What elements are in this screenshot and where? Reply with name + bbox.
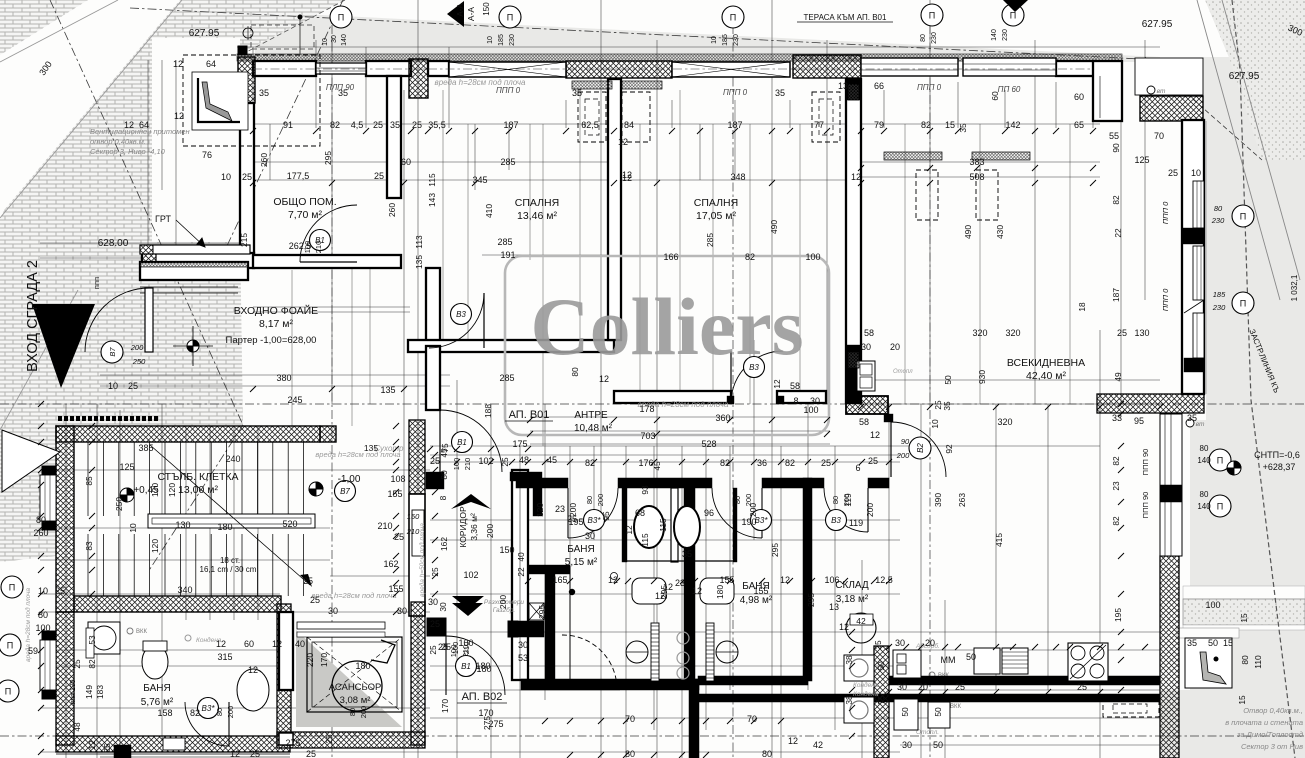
svg-text:П: П <box>338 13 344 23</box>
svg-text:85: 85 <box>84 476 94 486</box>
svg-text:П: П <box>1217 502 1223 512</box>
svg-text:70: 70 <box>625 714 635 724</box>
svg-text:В2: В2 <box>916 443 925 453</box>
svg-text:410: 410 <box>484 204 494 218</box>
svg-text:25: 25 <box>1077 682 1087 692</box>
svg-text:360: 360 <box>715 413 730 423</box>
svg-text:20: 20 <box>925 638 935 648</box>
svg-text:220: 220 <box>305 653 315 667</box>
svg-text:140: 140 <box>1197 502 1211 511</box>
svg-text:703: 703 <box>640 431 655 441</box>
svg-text:383: 383 <box>969 157 984 167</box>
svg-text:166: 166 <box>663 252 678 262</box>
svg-text:142: 142 <box>1005 120 1020 130</box>
svg-text:13,46 м²: 13,46 м² <box>517 210 557 222</box>
svg-text:12: 12 <box>692 586 702 596</box>
svg-text:30: 30 <box>438 602 448 612</box>
svg-text:Кондена: Кондена <box>853 681 879 689</box>
svg-text:508: 508 <box>969 172 984 182</box>
svg-text:185: 185 <box>722 34 729 46</box>
svg-text:12: 12 <box>870 430 880 440</box>
svg-text:68: 68 <box>635 508 645 518</box>
svg-text:90: 90 <box>1111 143 1121 153</box>
svg-text:вт: вт <box>1157 88 1166 95</box>
svg-text:285: 285 <box>705 233 715 247</box>
svg-text:10: 10 <box>38 586 48 596</box>
svg-text:158: 158 <box>157 708 172 718</box>
svg-text:Отвор 0,40кв.м.,: Отвор 0,40кв.м., <box>1243 706 1303 715</box>
svg-text:75: 75 <box>876 695 886 705</box>
svg-text:25: 25 <box>373 120 383 130</box>
svg-text:П: П <box>1010 11 1016 21</box>
svg-text:ППП 90: ППП 90 <box>1141 492 1150 519</box>
svg-text:92: 92 <box>944 444 954 454</box>
svg-text:25: 25 <box>250 749 260 758</box>
svg-text:30: 30 <box>585 531 595 541</box>
svg-text:12: 12 <box>174 111 184 121</box>
svg-text:200: 200 <box>596 494 605 507</box>
svg-text:33: 33 <box>1112 413 1122 423</box>
svg-text:348: 348 <box>730 172 745 182</box>
svg-text:ПП 60: ПП 60 <box>998 85 1021 94</box>
svg-text:42,40 м²: 42,40 м² <box>1026 370 1066 382</box>
svg-text:80: 80 <box>625 749 635 758</box>
svg-text:627.95: 627.95 <box>1142 19 1173 30</box>
svg-text:8,17 м²: 8,17 м² <box>259 318 294 330</box>
svg-text:82: 82 <box>745 252 755 262</box>
svg-text:79: 79 <box>874 120 884 130</box>
svg-text:23: 23 <box>555 504 565 514</box>
svg-text:Отопл.: Отопл. <box>916 729 939 736</box>
svg-text:170: 170 <box>319 653 329 667</box>
svg-text:12: 12 <box>124 120 134 130</box>
svg-text:6: 6 <box>855 463 860 473</box>
svg-text:150: 150 <box>482 2 491 16</box>
svg-text:260: 260 <box>33 528 48 538</box>
svg-text:149: 149 <box>84 685 94 699</box>
svg-text:12: 12 <box>788 736 798 746</box>
svg-text:315: 315 <box>217 652 232 662</box>
svg-text:СПАЛНЯ: СПАЛНЯ <box>515 197 559 209</box>
svg-text:200: 200 <box>498 595 508 609</box>
svg-text:200: 200 <box>568 503 578 517</box>
svg-text:ОБЩО ПОМ.: ОБЩО ПОМ. <box>273 196 336 208</box>
svg-text:25: 25 <box>306 749 316 758</box>
svg-text:вт: вт <box>1196 421 1205 428</box>
svg-text:82: 82 <box>190 708 200 718</box>
svg-text:70: 70 <box>747 714 757 724</box>
svg-text:35: 35 <box>942 401 952 411</box>
svg-text:40: 40 <box>516 552 526 562</box>
svg-text:22: 22 <box>516 567 526 577</box>
svg-text:100: 100 <box>1205 600 1220 610</box>
svg-text:АП. В02: АП. В02 <box>462 691 503 703</box>
svg-text:18 ст.: 18 ст. <box>220 556 240 565</box>
svg-text:180: 180 <box>715 585 725 599</box>
svg-text:90: 90 <box>901 437 910 446</box>
svg-text:38: 38 <box>844 695 854 705</box>
svg-text:120: 120 <box>167 483 177 497</box>
svg-text:35: 35 <box>390 120 400 130</box>
svg-text:200: 200 <box>130 343 144 352</box>
svg-text:25: 25 <box>72 659 82 669</box>
svg-text:ППП 0: ППП 0 <box>1161 288 1170 311</box>
svg-text:30: 30 <box>810 396 820 406</box>
svg-text:30: 30 <box>895 638 905 648</box>
svg-text:140: 140 <box>341 34 348 46</box>
svg-text:15: 15 <box>1237 695 1247 705</box>
svg-text:250: 250 <box>132 357 146 366</box>
svg-text:385: 385 <box>138 443 153 453</box>
svg-text:БАНЯ: БАНЯ <box>143 683 170 694</box>
svg-text:80: 80 <box>831 496 840 504</box>
svg-text:143: 143 <box>427 193 437 207</box>
svg-text:59: 59 <box>28 646 38 656</box>
svg-text:155: 155 <box>719 575 734 585</box>
svg-text:38: 38 <box>844 655 854 665</box>
svg-text:210: 210 <box>406 527 420 536</box>
svg-text:175: 175 <box>512 439 527 449</box>
svg-text:250: 250 <box>114 497 124 511</box>
svg-text:187: 187 <box>503 120 518 130</box>
svg-text:30: 30 <box>328 606 338 616</box>
svg-text:627.95: 627.95 <box>1229 71 1260 82</box>
svg-text:АСАНСЬОР: АСАНСЬОР <box>329 682 382 693</box>
svg-text:162: 162 <box>439 537 449 551</box>
svg-text:42: 42 <box>856 616 866 626</box>
svg-text:120: 120 <box>535 503 545 517</box>
svg-text:285: 285 <box>500 157 515 167</box>
svg-text:110: 110 <box>1253 655 1263 669</box>
svg-text:80: 80 <box>38 610 48 620</box>
svg-text:58: 58 <box>790 381 800 391</box>
svg-text:102: 102 <box>463 570 478 580</box>
svg-text:185: 185 <box>498 34 505 46</box>
svg-text:30: 30 <box>902 740 912 750</box>
svg-text:АНТРЕ: АНТРЕ <box>574 410 608 421</box>
svg-text:628.00: 628.00 <box>98 238 129 249</box>
svg-text:82: 82 <box>585 458 595 468</box>
svg-text:Colliers: Colliers <box>530 281 803 372</box>
svg-text:12: 12 <box>780 575 790 585</box>
svg-text:35: 35 <box>775 88 785 98</box>
svg-text:10: 10 <box>930 419 940 429</box>
svg-text:30: 30 <box>331 35 338 43</box>
svg-text:115: 115 <box>658 518 668 532</box>
svg-text:5,76 м²: 5,76 м² <box>141 697 174 708</box>
svg-text:12: 12 <box>608 575 618 585</box>
svg-text:ППП 0: ППП 0 <box>917 83 942 92</box>
svg-text:108: 108 <box>390 474 405 484</box>
svg-text:8: 8 <box>793 396 798 406</box>
svg-text:12: 12 <box>839 622 849 632</box>
svg-text:12: 12 <box>624 525 634 535</box>
svg-text:45: 45 <box>439 448 449 458</box>
svg-text:В3: В3 <box>831 516 841 525</box>
svg-text:295: 295 <box>770 543 780 557</box>
svg-text:50: 50 <box>943 375 953 385</box>
svg-text:77: 77 <box>814 120 824 130</box>
svg-text:80: 80 <box>348 708 357 716</box>
svg-text:3,18 м²: 3,18 м² <box>836 594 869 605</box>
svg-text:82: 82 <box>720 458 730 468</box>
svg-text:150: 150 <box>499 545 514 555</box>
svg-text:115: 115 <box>427 173 437 187</box>
svg-text:БАНЯ: БАНЯ <box>567 544 594 555</box>
svg-text:П: П <box>1217 456 1223 466</box>
svg-text:119: 119 <box>849 518 863 528</box>
svg-text:25: 25 <box>430 619 440 629</box>
svg-text:12: 12 <box>851 172 861 182</box>
svg-text:СКЛАД: СКЛАД <box>835 580 869 591</box>
svg-text:60: 60 <box>990 91 1000 101</box>
svg-text:30: 30 <box>897 682 907 692</box>
svg-text:ППП 90: ППП 90 <box>1141 449 1150 476</box>
svg-text:245: 245 <box>287 395 302 405</box>
svg-text:84: 84 <box>624 120 634 130</box>
svg-text:155: 155 <box>388 584 403 594</box>
svg-text:ппп 130: ппп 130 <box>70 679 77 704</box>
svg-text:отвор 0,40кв.м.: отвор 0,40кв.м. <box>90 137 146 146</box>
svg-text:82: 82 <box>1111 516 1121 526</box>
svg-text:ММ: ММ <box>941 655 956 665</box>
svg-text:188: 188 <box>483 404 493 418</box>
svg-text:12: 12 <box>173 59 183 69</box>
svg-text:275: 275 <box>285 738 300 748</box>
svg-text:25: 25 <box>412 120 422 130</box>
svg-text:275: 275 <box>482 716 492 730</box>
svg-text:25: 25 <box>374 171 384 181</box>
svg-text:25: 25 <box>55 586 65 596</box>
svg-text:140: 140 <box>991 29 998 41</box>
svg-text:15: 15 <box>1223 638 1233 648</box>
svg-text:13,00 м²: 13,00 м² <box>178 484 218 496</box>
svg-text:200: 200 <box>865 503 875 517</box>
svg-text:62,5: 62,5 <box>581 120 599 130</box>
svg-text:430: 430 <box>995 225 1005 239</box>
svg-text:12: 12 <box>216 639 226 649</box>
svg-text:80: 80 <box>1200 444 1209 453</box>
svg-text:345: 345 <box>472 175 487 185</box>
svg-text:8: 8 <box>438 495 448 500</box>
svg-text:215: 215 <box>239 233 249 247</box>
svg-text:64: 64 <box>206 59 216 69</box>
svg-text:82: 82 <box>785 458 795 468</box>
svg-text:930: 930 <box>977 370 987 384</box>
svg-text:528: 528 <box>701 439 716 449</box>
svg-text:80: 80 <box>733 496 742 504</box>
svg-text:10: 10 <box>487 36 494 44</box>
svg-text:230: 230 <box>1211 216 1225 225</box>
svg-text:В3*: В3* <box>588 516 602 525</box>
svg-text:120: 120 <box>150 483 160 497</box>
svg-text:80: 80 <box>36 515 46 525</box>
svg-text:55: 55 <box>1109 131 1119 141</box>
svg-text:Сектор 3, Ниво -4,10: Сектор 3, Ниво -4,10 <box>90 147 166 156</box>
svg-text:12: 12 <box>230 749 240 758</box>
svg-text:СПАЛНЯ: СПАЛНЯ <box>694 197 738 209</box>
svg-text:155: 155 <box>387 489 402 499</box>
svg-text:25: 25 <box>394 532 404 542</box>
svg-text:100: 100 <box>805 252 820 262</box>
svg-text:100: 100 <box>451 642 460 655</box>
svg-text:10: 10 <box>128 523 138 533</box>
svg-text:180: 180 <box>217 522 232 532</box>
svg-text:42: 42 <box>813 740 823 750</box>
svg-text:180: 180 <box>475 661 490 671</box>
svg-text:Сектор 3 от Нив: Сектор 3 от Нив <box>1241 742 1303 751</box>
svg-text:25: 25 <box>1117 328 1127 338</box>
svg-text:3,36 м²: 3,36 м² <box>469 513 479 541</box>
svg-text:25: 25 <box>873 640 883 650</box>
svg-text:10,48 м²: 10,48 м² <box>574 423 613 434</box>
svg-text:100: 100 <box>303 241 312 254</box>
svg-text:95: 95 <box>1134 416 1144 426</box>
svg-text:210: 210 <box>463 458 472 471</box>
svg-text:Партер -1,00=628,00: Партер -1,00=628,00 <box>226 335 317 346</box>
svg-text:ВКК: ВКК <box>136 629 147 635</box>
svg-text:125: 125 <box>119 462 134 472</box>
svg-text:210: 210 <box>377 521 392 531</box>
svg-text:25: 25 <box>430 567 440 577</box>
svg-text:230: 230 <box>733 34 740 46</box>
svg-text:230: 230 <box>509 34 516 46</box>
svg-text:125: 125 <box>1134 155 1149 165</box>
svg-text:в плочата и стената: в плочата и стената <box>1225 718 1303 727</box>
svg-text:35,5: 35,5 <box>428 120 446 130</box>
svg-text:17,05 м²: 17,05 м² <box>696 210 736 222</box>
svg-text:80: 80 <box>1240 655 1250 665</box>
svg-text:12: 12 <box>622 170 632 180</box>
svg-text:70: 70 <box>1154 131 1164 141</box>
svg-text:12: 12 <box>772 379 782 389</box>
svg-text:49: 49 <box>1113 372 1123 382</box>
svg-text:30: 30 <box>428 597 438 607</box>
svg-text:627.95: 627.95 <box>189 28 220 39</box>
svg-text:177,5: 177,5 <box>287 171 310 181</box>
svg-text:П: П <box>507 13 513 23</box>
svg-text:187: 187 <box>1111 288 1121 302</box>
svg-text:вреда h=28см под плоча: вреда h=28см под плоча <box>311 591 396 600</box>
svg-text:260: 260 <box>259 153 269 167</box>
svg-text:16,1 cm / 30 cm: 16,1 cm / 30 cm <box>200 565 257 574</box>
svg-text:12,5: 12,5 <box>875 575 893 585</box>
svg-text:320: 320 <box>997 417 1012 427</box>
svg-text:ППП 0: ППП 0 <box>1161 201 1170 224</box>
svg-text:190: 190 <box>741 517 756 527</box>
svg-text:23: 23 <box>675 578 685 588</box>
svg-text:102: 102 <box>478 456 493 466</box>
svg-text:4,98 м²: 4,98 м² <box>740 595 773 606</box>
svg-text:25: 25 <box>821 458 831 468</box>
svg-text:53: 53 <box>518 653 528 663</box>
svg-text:91: 91 <box>283 120 293 130</box>
svg-text:25: 25 <box>242 172 252 182</box>
svg-text:48: 48 <box>72 722 82 732</box>
svg-text:60: 60 <box>401 157 411 167</box>
svg-text:295: 295 <box>537 605 547 619</box>
svg-text:320: 320 <box>1005 328 1020 338</box>
svg-text:135: 135 <box>414 255 424 269</box>
svg-text:285: 285 <box>499 373 514 383</box>
svg-text:340: 340 <box>177 585 192 595</box>
svg-text:80: 80 <box>570 367 580 377</box>
svg-text:10: 10 <box>322 38 329 46</box>
svg-text:80: 80 <box>1214 204 1223 213</box>
svg-text:490: 490 <box>963 225 973 239</box>
svg-text:195: 195 <box>1113 608 1123 622</box>
svg-text:22: 22 <box>1113 228 1123 238</box>
svg-text:10: 10 <box>108 381 118 391</box>
svg-text:35: 35 <box>338 88 348 98</box>
svg-text:35: 35 <box>682 549 692 559</box>
svg-text:200: 200 <box>896 451 910 460</box>
svg-text:5,15 м²: 5,15 м² <box>565 557 598 568</box>
svg-text:150: 150 <box>407 512 420 521</box>
svg-text:+628,37: +628,37 <box>1263 462 1296 472</box>
svg-text:15: 15 <box>945 120 955 130</box>
svg-text:82: 82 <box>330 120 340 130</box>
svg-text:35: 35 <box>1187 413 1197 423</box>
svg-text:415: 415 <box>994 533 1004 547</box>
svg-text:48: 48 <box>519 455 529 465</box>
svg-text:230: 230 <box>1212 303 1226 312</box>
svg-text:100: 100 <box>35 623 50 633</box>
svg-text:ВХОДНО ФОАЙЕ: ВХОДНО ФОАЙЕ <box>234 304 318 317</box>
svg-text:45: 45 <box>547 455 557 465</box>
svg-text:20: 20 <box>890 342 900 352</box>
svg-text:25: 25 <box>303 576 313 586</box>
svg-text:П: П <box>5 687 11 697</box>
svg-text:А-А: А-А <box>456 3 465 17</box>
svg-text:45: 45 <box>652 461 662 471</box>
svg-text:130: 130 <box>1134 328 1149 338</box>
svg-text:50: 50 <box>876 661 886 671</box>
svg-text:82: 82 <box>87 659 97 669</box>
svg-text:ВХОД СГРАДА 2: ВХОД СГРАДА 2 <box>25 260 41 372</box>
svg-text:135: 135 <box>364 443 378 453</box>
svg-text:295: 295 <box>323 151 333 165</box>
svg-text:520: 520 <box>282 519 297 529</box>
svg-text:50: 50 <box>966 652 976 662</box>
svg-text:36: 36 <box>757 458 767 468</box>
svg-text:П: П <box>9 583 15 593</box>
svg-text:210: 210 <box>462 642 471 655</box>
svg-text:23: 23 <box>1111 481 1121 491</box>
svg-text:25: 25 <box>310 595 320 605</box>
svg-text:30: 30 <box>861 342 871 352</box>
svg-text:200: 200 <box>842 494 851 507</box>
svg-text:76: 76 <box>202 150 212 160</box>
svg-text:260: 260 <box>387 203 397 217</box>
svg-text:96: 96 <box>704 508 714 518</box>
svg-text:115: 115 <box>640 533 650 547</box>
svg-text:7,70 м²: 7,70 м² <box>288 209 323 221</box>
svg-text:за Димо/Топлоотд: за Димо/Топлоотд <box>1236 730 1303 739</box>
svg-text:50: 50 <box>900 707 910 717</box>
svg-text:12: 12 <box>618 137 628 147</box>
svg-text:185: 185 <box>1213 290 1226 299</box>
svg-text:25: 25 <box>128 381 138 391</box>
svg-text:3,08 м²: 3,08 м² <box>340 695 371 706</box>
svg-text:ТЕРАСА КЪМ АП. В01: ТЕРАСА КЪМ АП. В01 <box>804 13 887 22</box>
svg-text:ГРТ: ГРТ <box>155 214 171 224</box>
svg-text:53: 53 <box>87 635 97 645</box>
svg-text:200: 200 <box>226 706 235 719</box>
svg-text:130: 130 <box>175 520 190 530</box>
svg-text:80: 80 <box>215 708 224 716</box>
svg-text:230: 230 <box>1002 29 1009 41</box>
